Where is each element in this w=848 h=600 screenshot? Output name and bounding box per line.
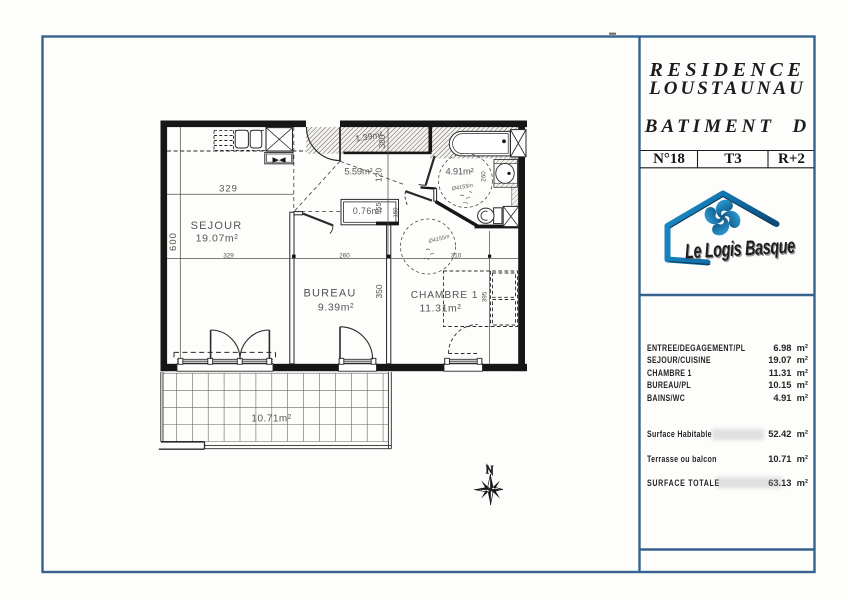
- svg-text:SEJOUR: SEJOUR: [191, 220, 243, 232]
- svg-text:19.07m²: 19.07m²: [196, 233, 239, 245]
- svg-text:5.59m²: 5.59m²: [345, 166, 373, 177]
- svg-text:11.31m²: 11.31m²: [420, 303, 462, 315]
- svg-text:260: 260: [339, 252, 350, 259]
- svg-text:310: 310: [451, 252, 462, 259]
- svg-text:600: 600: [168, 232, 179, 251]
- svg-text:10.71m²: 10.71m²: [251, 414, 291, 425]
- svg-text:150: 150: [394, 207, 400, 218]
- svg-text:Ø4155m: Ø4155m: [450, 183, 473, 193]
- svg-text:395: 395: [481, 291, 488, 302]
- svg-text:CHAMBRE 1: CHAMBRE 1: [411, 290, 479, 301]
- svg-text:4.91m²: 4.91m²: [446, 166, 474, 177]
- svg-text:329: 329: [223, 252, 234, 259]
- svg-text:555: 555: [376, 203, 383, 215]
- svg-text:350: 350: [374, 284, 384, 298]
- svg-text:329: 329: [219, 184, 238, 195]
- svg-text:BUREAU: BUREAU: [303, 288, 356, 300]
- svg-text:380: 380: [378, 134, 387, 148]
- svg-text:120: 120: [374, 168, 384, 182]
- svg-text:9.39m²: 9.39m²: [318, 302, 354, 314]
- svg-text:Ø4155m: Ø4155m: [427, 234, 451, 245]
- svg-text:260: 260: [480, 171, 487, 182]
